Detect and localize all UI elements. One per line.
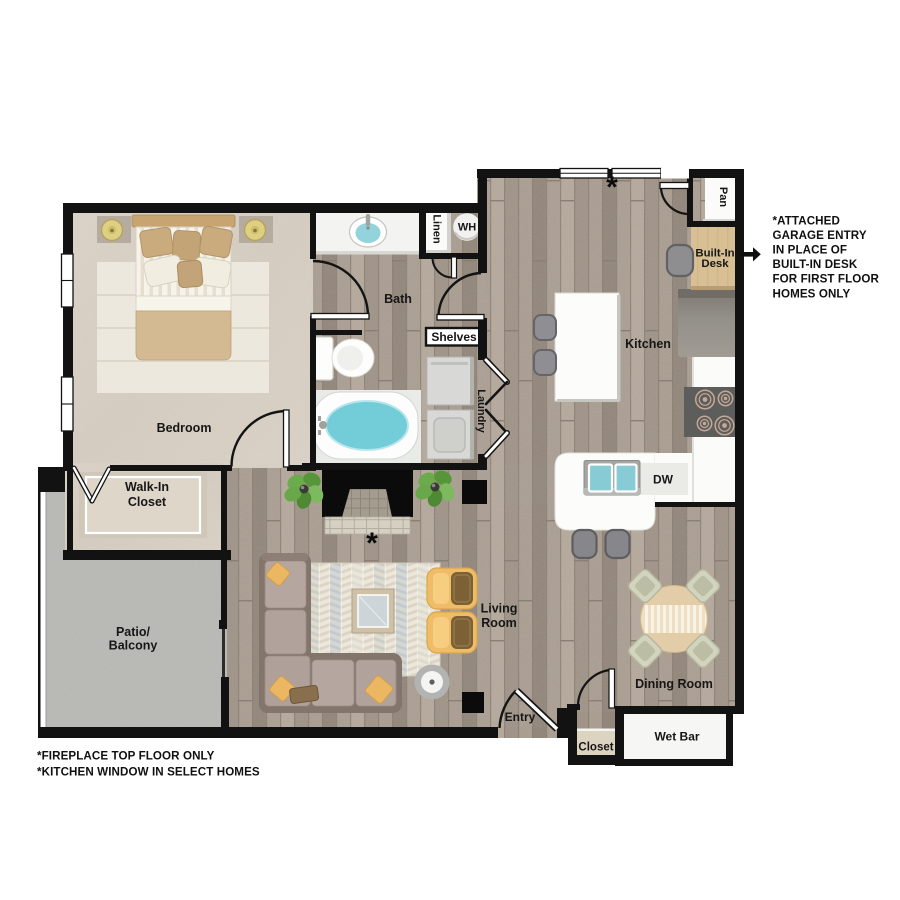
svg-text:Kitchen: Kitchen (625, 337, 671, 351)
svg-text:*: * (366, 527, 378, 560)
svg-text:DW: DW (653, 473, 674, 487)
svg-text:Linen: Linen (431, 214, 443, 244)
svg-text:Patio/: Patio/ (116, 625, 151, 639)
svg-text:Closet: Closet (578, 742, 613, 754)
svg-text:Room: Room (481, 616, 516, 630)
svg-text:Dining Room: Dining Room (635, 677, 713, 691)
svg-text:Shelves: Shelves (431, 330, 477, 344)
svg-text:WH: WH (458, 222, 476, 234)
svg-text:Walk-In: Walk-In (125, 480, 169, 494)
svg-text:*FIREPLACE TOP FLOOR ONLY: *FIREPLACE TOP FLOOR ONLY (37, 750, 215, 763)
svg-text:Bedroom: Bedroom (157, 421, 212, 435)
svg-text:*: * (606, 171, 618, 204)
svg-text:Bath: Bath (384, 292, 412, 306)
svg-text:Wet Bar: Wet Bar (654, 730, 699, 744)
svg-text:GARAGE ENTRY: GARAGE ENTRY (773, 229, 867, 242)
svg-text:Laundry: Laundry (475, 389, 487, 433)
svg-text:HOMES ONLY: HOMES ONLY (773, 287, 851, 300)
svg-text:*KITCHEN WINDOW IN SELECT HOME: *KITCHEN WINDOW IN SELECT HOMES (37, 766, 260, 779)
svg-text:BUILT-IN DESK: BUILT-IN DESK (773, 258, 858, 271)
svg-text:Closet: Closet (128, 495, 167, 509)
svg-text:FOR FIRST FLOOR: FOR FIRST FLOOR (773, 273, 880, 286)
svg-text:Living: Living (481, 602, 518, 616)
svg-text:Pan: Pan (717, 187, 729, 207)
svg-text:IN PLACE OF: IN PLACE OF (773, 244, 848, 257)
svg-text:Entry: Entry (505, 710, 536, 724)
svg-text:Desk: Desk (701, 258, 729, 270)
svg-text:Balcony: Balcony (109, 639, 158, 653)
svg-text:*ATTACHED: *ATTACHED (773, 214, 840, 227)
